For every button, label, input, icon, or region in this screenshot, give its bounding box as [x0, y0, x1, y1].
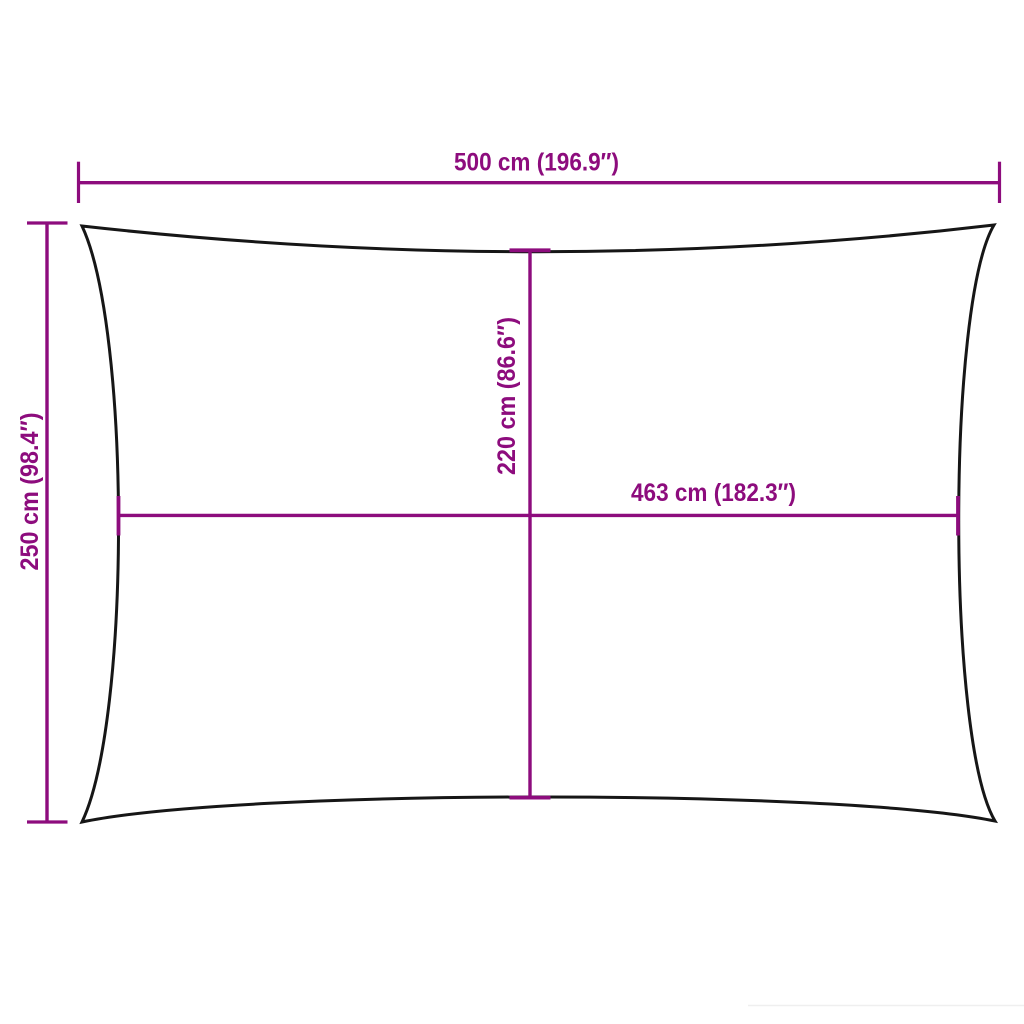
- svg-text:500 cm (196.9″): 500 cm (196.9″): [454, 149, 619, 177]
- svg-text:250 cm (98.4″): 250 cm (98.4″): [16, 413, 44, 571]
- svg-text:220 cm (86.6″): 220 cm (86.6″): [493, 317, 521, 475]
- svg-text:463 cm (182.3″): 463 cm (182.3″): [631, 479, 796, 507]
